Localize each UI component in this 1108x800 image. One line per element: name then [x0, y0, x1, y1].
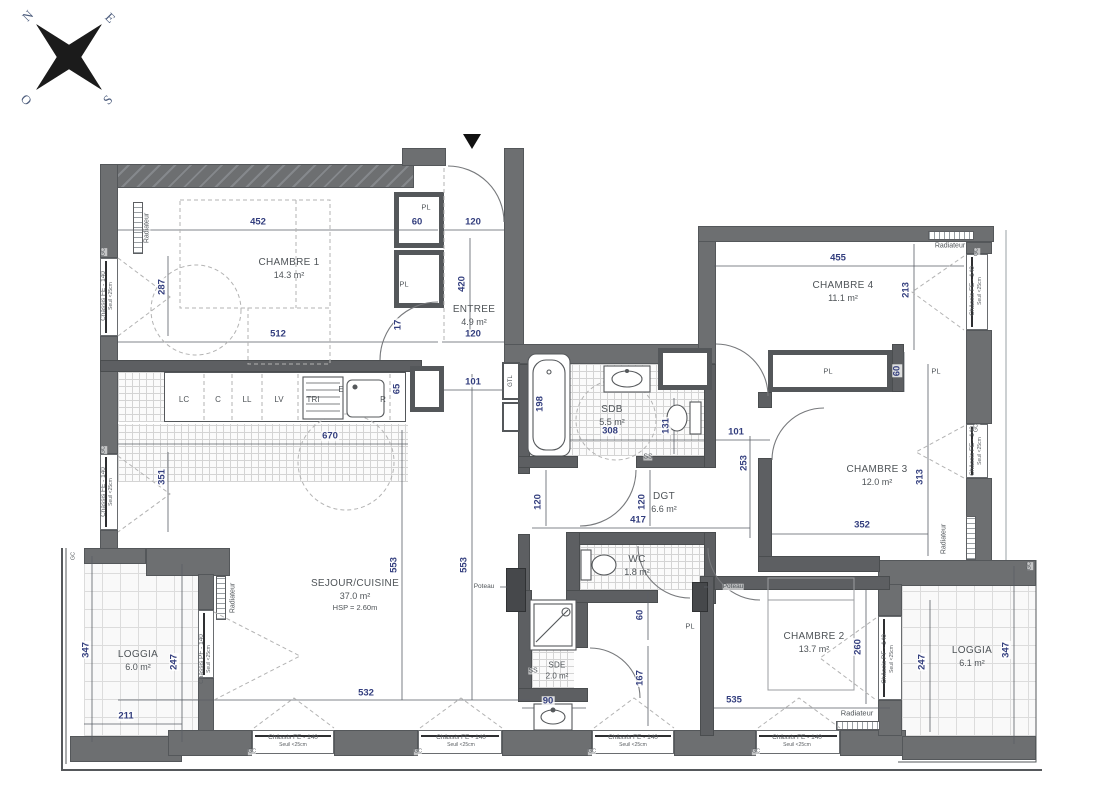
dim-ch3-width: 352: [853, 520, 871, 530]
kitchen-unit-label: TRI: [307, 396, 320, 404]
room-label-loggia-left: LOGGIA 6.0 m²: [118, 650, 158, 672]
window-type: Châssis FE - 140: [969, 426, 977, 476]
window-label-fe: Châssis FE - 140Seuil <25cm: [268, 734, 318, 748]
room-name: CHAMBRE 2: [783, 632, 844, 642]
compass-e: E: [102, 10, 118, 26]
radiateur-label: Radiateur: [144, 213, 151, 243]
circle: [551, 708, 555, 712]
room-area: 37.0 m²: [311, 592, 399, 601]
wall: [566, 590, 658, 603]
wall: [758, 458, 772, 562]
room-name: SDB: [599, 405, 625, 415]
ss-label: SS: [643, 454, 652, 461]
window-sill: Seuil <25cm: [108, 467, 114, 517]
dim-sejour-height-a: 553: [389, 556, 399, 574]
pl-label: PL: [931, 367, 940, 375]
dim-dgt-height: 253: [739, 454, 749, 472]
kitchen-unit-label: E: [338, 386, 343, 394]
window-sill: Seuil <25cm: [108, 271, 114, 321]
pl-label: PL: [823, 367, 832, 375]
rect: [534, 704, 572, 730]
dim-loggia-left-depth: 247: [169, 653, 179, 671]
room-area: 2.0 m²: [546, 673, 569, 681]
kitchen-unit-label: R: [380, 396, 386, 404]
wall: [878, 700, 902, 736]
dim-ch1-bottom: 512: [269, 329, 287, 339]
gc-label: GC: [248, 749, 256, 755]
gc-label: GC: [101, 248, 107, 256]
closet-niche: [658, 348, 712, 390]
entrance-arrow-icon: [463, 134, 481, 149]
radiateur-label: Radiateur: [841, 709, 874, 717]
room-area: 13.7 m²: [783, 645, 844, 654]
dim-dgt-width: 417: [629, 515, 647, 525]
wall: [146, 548, 230, 576]
room-area: 4.9 m²: [453, 318, 495, 327]
room-name: ENTREE: [453, 305, 495, 315]
wall: [758, 392, 772, 408]
dim-loggia-left-width: 211: [117, 711, 134, 721]
room-name: LOGGIA: [952, 646, 992, 656]
path: [716, 344, 768, 396]
kitchen-unit-label: C: [215, 396, 221, 404]
path: [448, 166, 504, 222]
radiateur-label: Radiateur: [941, 524, 948, 554]
dim-dgt-door-a: 120: [533, 493, 543, 511]
dim-dgt-door-b: 120: [637, 493, 647, 511]
structural-column: [506, 568, 526, 612]
radiator-icon: [836, 721, 880, 730]
kitchen-counter: [164, 372, 406, 422]
window-type: Châssis FE - 140: [608, 734, 658, 742]
wall: [100, 164, 118, 258]
gtl-duct: [502, 402, 520, 432]
dim-ch2-height: 260: [853, 638, 863, 656]
room-label-chambre-1: CHAMBRE 1 14.3 m²: [258, 258, 319, 280]
window-label-fe: Châssis FE - 140Seuil <25cm: [100, 271, 114, 321]
path: [590, 648, 640, 698]
dim-entree-top: 120: [464, 217, 482, 227]
window-sill: Seuil <25cm: [268, 742, 318, 748]
dim-loggia-right-depth: 247: [917, 653, 927, 671]
window-label-fe: Châssis FE - 140Seuil <25cm: [608, 734, 658, 748]
radiator-icon: [928, 231, 974, 240]
dim-sdb-height: 198: [535, 395, 545, 413]
dim-dgt-top: 101: [727, 427, 745, 437]
compass-rose: N E S O: [14, 2, 124, 112]
window-type: Châssis FE - 140: [268, 734, 318, 742]
dim-loggia-left-height: 347: [81, 641, 91, 659]
wet-room-tiles: [118, 372, 164, 422]
room-name: SEJOUR/CUISINE: [311, 579, 399, 589]
path: [380, 302, 438, 360]
dim-ch2-width: 535: [725, 695, 743, 705]
wall: [402, 148, 446, 166]
ellipse: [541, 710, 565, 724]
g: N E S O: [18, 7, 119, 109]
room-area: 6.6 m²: [651, 505, 677, 514]
wall: [100, 360, 422, 372]
wall: [674, 730, 756, 756]
room-label-wc: WC 1.8 m²: [624, 555, 650, 577]
gc-label: GC: [974, 248, 980, 256]
dim-wc-height: 167: [635, 669, 645, 687]
dim-entree-height: 420: [457, 275, 467, 293]
dim-entree-pl: 60: [411, 217, 424, 227]
room-label-sde: SDE 2.0 m²: [546, 662, 569, 681]
room-area: 6.1 m²: [952, 659, 992, 668]
wall: [504, 148, 524, 364]
wall: [878, 560, 1036, 586]
window-type: Châssis PF - 140: [881, 634, 889, 684]
pl-label: PL: [421, 203, 430, 211]
path: [772, 408, 824, 460]
room-label-loggia-right: LOGGIA 6.1 m²: [952, 646, 992, 668]
room-ceiling-height: HSP = 2.60m: [311, 604, 399, 612]
room-area: 1.8 m²: [624, 568, 650, 577]
pl-label: PL: [399, 280, 408, 288]
room-name: DGT: [651, 492, 677, 502]
closet-niche: [410, 366, 444, 412]
room-label-dgt: DGT 6.6 m²: [651, 492, 677, 514]
radiateur-label: Radiateur: [230, 583, 237, 613]
poteau-label: Poteau: [723, 584, 744, 591]
dim-kitchen-depth: 65: [392, 383, 402, 396]
room-area: 11.1 m²: [812, 294, 873, 303]
room-label-chambre-4: CHAMBRE 4 11.1 m²: [812, 281, 873, 303]
room-name: SDE: [546, 662, 569, 670]
wall: [902, 736, 1036, 760]
dim-sejour-window: 351: [157, 468, 167, 486]
window-sill: Seuil <25cm: [977, 266, 983, 316]
dim-entree-bottom: 120: [464, 329, 482, 339]
window-type: Châssis FE - 140: [100, 467, 108, 517]
window-type: Châssis FE - 140: [969, 266, 977, 316]
room-name: CHAMBRE 3: [846, 465, 907, 475]
poteau-label: Poteau: [474, 584, 495, 591]
wall: [966, 330, 992, 424]
dim-ch3-height: 313: [915, 468, 925, 486]
window-label-pf: Châssis PF - 140Seuil <25cm: [881, 634, 895, 684]
wall: [518, 456, 578, 468]
window-type: Châssis FE - 140: [100, 271, 108, 321]
ss-label: SS: [528, 668, 537, 675]
wall: [334, 730, 418, 756]
gc-label: GC: [414, 749, 422, 755]
wall: [100, 336, 118, 454]
dim-sdb-wc: 131: [661, 417, 671, 435]
gc-label: GC: [71, 552, 77, 560]
gc-label: GC: [752, 749, 760, 755]
compass-o: O: [18, 91, 35, 108]
dim-entree-kitchen: 101: [464, 377, 482, 387]
window-label-fe: Châssis FE - 140Seuil <25cm: [969, 266, 983, 316]
wall: [168, 730, 252, 756]
radiator-icon: [216, 576, 226, 620]
washbasin-sde-icon: [534, 704, 572, 730]
window-sill: Seuil <25cm: [436, 742, 486, 748]
kitchen-unit-label: LV: [274, 396, 283, 404]
dim-sdb-width: 308: [601, 426, 619, 436]
gc-label: GC: [588, 749, 596, 755]
window-label-fe: Châssis FE - 140Seuil <25cm: [772, 734, 822, 748]
gc-label: GC: [1027, 562, 1033, 570]
wall: [84, 548, 146, 564]
room-name: CHAMBRE 1: [258, 258, 319, 268]
window-sill: Seuil <25cm: [977, 426, 983, 476]
compass-n: N: [19, 7, 37, 25]
dim-sejour-width: 532: [357, 688, 375, 698]
room-area: 6.0 m²: [118, 663, 158, 672]
room-name: LOGGIA: [118, 650, 158, 660]
wall: [70, 736, 182, 762]
room-label-sejour-cuisine: SEJOUR/CUISINE 37.0 m² HSP = 2.60m: [311, 579, 399, 612]
room-name: CHAMBRE 4: [812, 281, 873, 291]
wall: [100, 164, 414, 188]
room-label-entree: ENTREE 4.9 m²: [453, 305, 495, 327]
floor-plan: N E S O: [0, 0, 1108, 800]
wall: [566, 532, 716, 545]
room-name: WC: [624, 555, 650, 565]
room-label-chambre-2: CHAMBRE 2 13.7 m²: [783, 632, 844, 654]
window-sill: Seuil <25cm: [772, 742, 822, 748]
dim-ch1-window: 287: [157, 278, 167, 296]
kitchen-unit-label: LC: [179, 396, 189, 404]
wall: [758, 556, 880, 572]
dim-pl-ch3: 60: [892, 365, 902, 378]
wall: [198, 574, 214, 610]
room-label-chambre-3: CHAMBRE 3 12.0 m²: [846, 465, 907, 487]
dim-loggia-right-height: 347: [1001, 641, 1011, 659]
window-label-fe: Châssis FE - 140Seuil <25cm: [969, 426, 983, 476]
window-type: Châssis PF - 140: [198, 634, 206, 684]
window-label-fe: Châssis FE - 140Seuil <25cm: [436, 734, 486, 748]
dim-wc-pl: 60: [635, 609, 645, 622]
compass-s: S: [100, 92, 116, 108]
room-label-sdb: SDB 5.5 m²: [599, 405, 625, 427]
room-area: 14.3 m²: [258, 271, 319, 280]
structural-column: [692, 582, 708, 612]
window-label-pf: Châssis PF - 140Seuil <25cm: [198, 634, 212, 684]
dim-ch1-top: 452: [249, 217, 267, 227]
dim-ch4-height: 213: [901, 281, 911, 299]
window-sill: Seuil <25cm: [889, 634, 895, 684]
wall: [566, 532, 580, 592]
compass-star: [37, 25, 102, 90]
window-label-fe: Châssis FE - 140Seuil <25cm: [100, 467, 114, 517]
radiateur-label: Radiateur: [935, 243, 965, 250]
window-sill: Seuil <25cm: [608, 742, 658, 748]
kitchen-unit-label: LL: [243, 396, 252, 404]
gc-label: GC: [101, 446, 107, 454]
window-type: Châssis FE - 140: [772, 734, 822, 742]
dim-sejour-height-b: 553: [459, 556, 469, 574]
window-type: Châssis FE - 140: [436, 734, 486, 742]
radiator-icon: [133, 202, 143, 254]
gtl-label: GTL: [508, 375, 514, 387]
dim-sde-width: 90: [542, 696, 555, 706]
room-area: 12.0 m²: [846, 478, 907, 487]
dim-ch1-door: 17: [393, 319, 403, 332]
dim-ch4-width: 455: [829, 253, 847, 263]
pl-label: PL: [685, 622, 694, 630]
window-sill: Seuil <25cm: [206, 634, 212, 684]
wall: [502, 730, 592, 756]
path: [580, 470, 636, 526]
wall: [698, 226, 716, 364]
radiator-icon: [966, 516, 976, 560]
dim-kitchen-length: 670: [321, 431, 339, 441]
